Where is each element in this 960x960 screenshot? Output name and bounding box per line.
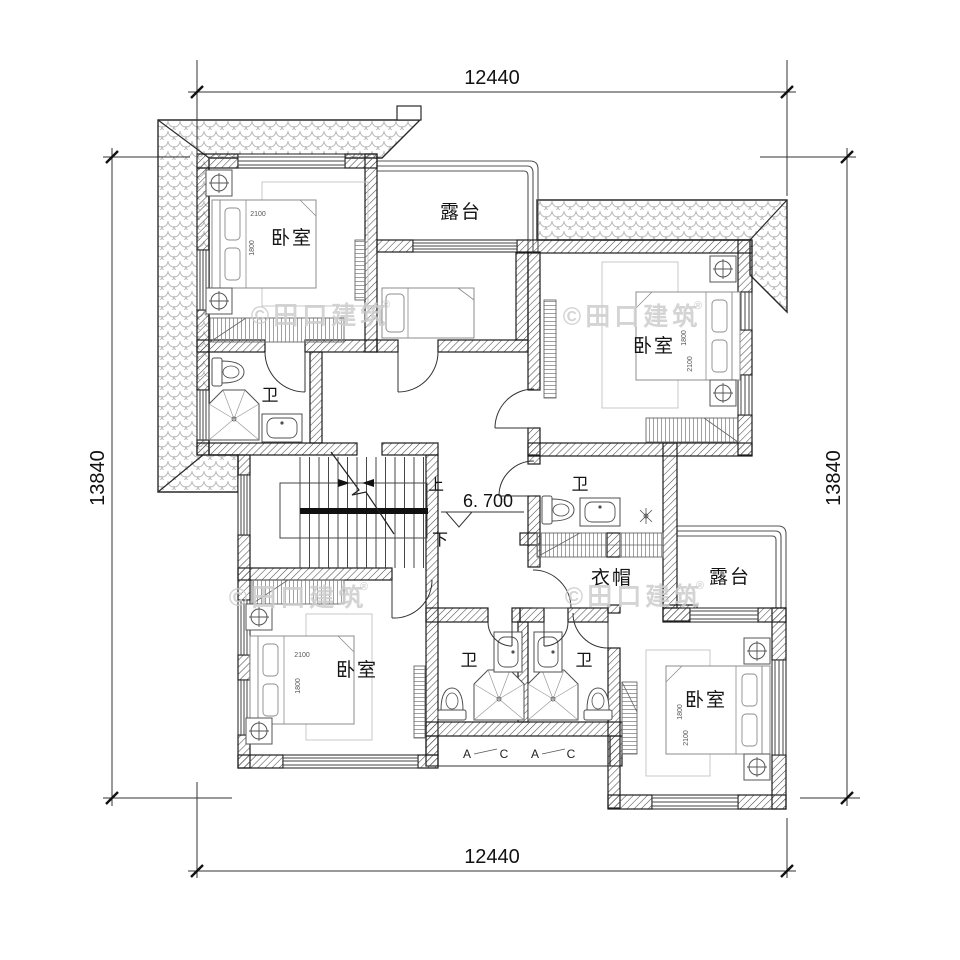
floor-plan: 上 下 6. 700 A C A C 卧室 卧室 卧室 卧室 露台 露台 卫: [0, 0, 960, 960]
window: [197, 390, 209, 440]
bed-dim: 2100: [250, 211, 266, 218]
elevation-value: 6. 700: [463, 491, 513, 511]
window: [772, 660, 786, 755]
dimension-left-value: 13840: [87, 450, 109, 506]
room-label-bath-top-left: 卫: [262, 386, 279, 405]
watermark: ©田口建筑®: [251, 299, 390, 330]
window: [283, 755, 418, 768]
sink: [580, 498, 620, 526]
svg-text:©田口建筑: ©田口建筑: [563, 302, 701, 331]
svg-text:®: ®: [696, 580, 704, 592]
svg-text:©田口建筑: ©田口建筑: [565, 582, 703, 611]
window: [238, 475, 250, 535]
floor-drain: [640, 508, 652, 524]
watermark: ©田口建筑®: [565, 580, 704, 611]
roof-chimney: [397, 106, 421, 120]
watermark: ©田口建筑®: [563, 300, 702, 331]
tag-c: C: [567, 747, 576, 761]
room-label-terrace-bottom-right: 露台: [709, 566, 751, 588]
sink: [534, 632, 562, 672]
svg-text:®: ®: [382, 299, 390, 311]
tag-a: A: [531, 747, 539, 761]
bed-dim: 2100: [294, 652, 310, 659]
window: [238, 154, 345, 168]
nightstand-lamp: [744, 754, 770, 780]
bed-dim: 2100: [683, 730, 690, 746]
window: [413, 240, 517, 252]
door: [398, 352, 438, 392]
bed-dim: 1800: [295, 678, 302, 694]
bed-dim: 1800: [681, 330, 688, 346]
single-bed: [382, 288, 474, 338]
sink: [262, 414, 302, 442]
nightstand-lamp: [206, 288, 232, 314]
shower: [209, 390, 259, 440]
dimension-top-value: 12440: [464, 67, 520, 89]
svg-text:©田口建筑: ©田口建筑: [229, 583, 367, 612]
nightstand-lamp: [206, 170, 232, 196]
room-label-bedroom-top-left: 卧室: [271, 227, 313, 249]
nightstand-lamp: [710, 380, 736, 406]
stair-up-label: 上: [428, 476, 444, 494]
nightstand-lamp: [710, 256, 736, 282]
svg-text:®: ®: [360, 581, 368, 593]
room-label-bath-middle: 卫: [572, 475, 589, 494]
tag-a: A: [463, 747, 471, 761]
room-label-bedroom-bottom-left: 卧室: [336, 659, 378, 681]
dimension-right-value: 13840: [823, 450, 845, 506]
tag-c: C: [500, 747, 509, 761]
nightstand-lamp: [246, 718, 272, 744]
room-label-bath-bottom-left: 卫: [461, 651, 478, 670]
room-label-bath-bottom-right: 卫: [576, 651, 593, 670]
room-label-bedroom-bottom-right: 卧室: [685, 689, 727, 711]
stair-center-rail: [300, 508, 428, 514]
window: [652, 795, 738, 809]
stair-arrow: [362, 479, 374, 487]
stair-break-line: [331, 452, 394, 534]
stair-arrow: [338, 479, 350, 487]
dimension-bottom-value: 12440: [464, 846, 520, 868]
nightstand-lamp: [744, 638, 770, 664]
door: [495, 389, 534, 428]
furniture: [206, 170, 770, 780]
svg-text:®: ®: [694, 300, 702, 312]
bed-dim: 1800: [677, 704, 684, 720]
window: [738, 375, 752, 415]
watermark: ©田口建筑®: [229, 581, 368, 612]
stair-down-label: 下: [432, 532, 448, 549]
toilet: [212, 358, 244, 386]
shower: [528, 670, 578, 720]
svg-text:©田口建筑: ©田口建筑: [251, 301, 389, 330]
toilet: [542, 496, 574, 524]
shower: [474, 670, 524, 720]
bed-dim: 1800: [249, 240, 256, 256]
room-label-bedroom-top-right: 卧室: [633, 335, 675, 357]
toilet: [438, 688, 466, 720]
sink: [494, 632, 522, 672]
stairs: 上 下: [280, 452, 448, 568]
section-tags: A C A C: [426, 747, 622, 766]
room-label-terrace-top: 露台: [440, 201, 482, 223]
bed-dim: 2100: [687, 356, 694, 372]
